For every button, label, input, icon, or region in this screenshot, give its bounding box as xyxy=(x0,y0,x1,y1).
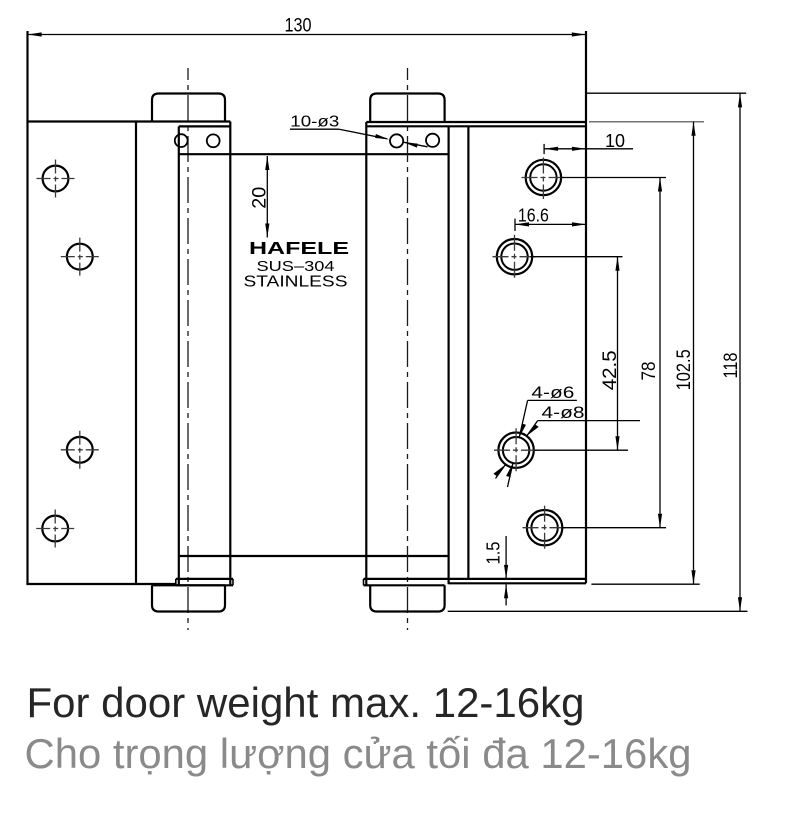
svg-text:HAFELE: HAFELE xyxy=(249,238,349,258)
svg-text:20: 20 xyxy=(250,187,271,209)
svg-text:4-ø8: 4-ø8 xyxy=(542,403,585,422)
svg-text:Cho trọng lượng cửa tối đa 12-: Cho trọng lượng cửa tối đa 12-16kg xyxy=(25,730,692,777)
svg-text:118: 118 xyxy=(721,353,742,379)
svg-text:STAINLESS: STAINLESS xyxy=(244,274,348,291)
svg-text:SUS–304: SUS–304 xyxy=(257,258,335,275)
svg-text:78: 78 xyxy=(639,362,660,381)
svg-text:42.5: 42.5 xyxy=(600,350,621,390)
svg-text:10-ø3: 10-ø3 xyxy=(290,114,339,131)
svg-text:16.6: 16.6 xyxy=(518,206,549,226)
svg-text:130: 130 xyxy=(285,16,312,37)
svg-text:102.5: 102.5 xyxy=(674,349,695,390)
svg-text:For door weight max. 12-16kg: For door weight max. 12-16kg xyxy=(27,679,585,726)
svg-text:1.5: 1.5 xyxy=(484,542,504,565)
svg-text:4-ø6: 4-ø6 xyxy=(531,383,574,402)
svg-text:10: 10 xyxy=(605,131,625,151)
